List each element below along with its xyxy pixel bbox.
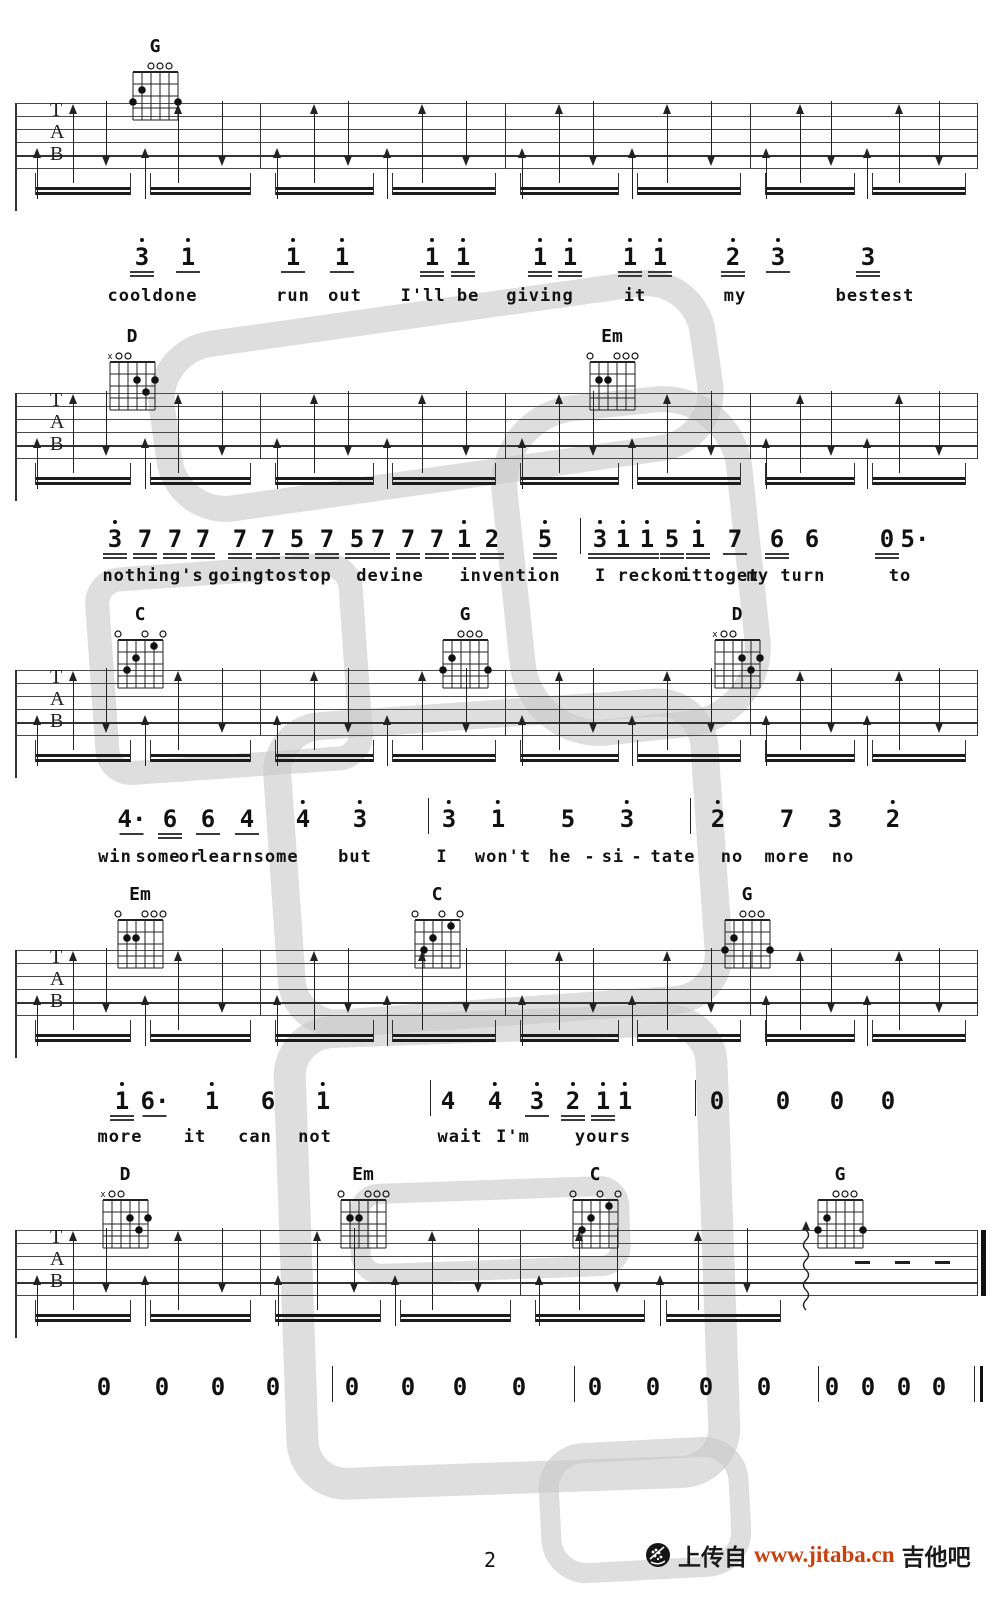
melody-number: 4· [118,800,147,835]
staff-line [15,709,977,710]
lyric-word: - [631,847,642,867]
strum-up-arrow [314,680,315,750]
duration-underline [648,275,672,277]
duration-underline [133,553,157,555]
melody-number: 7 [396,520,420,559]
clef-letter-t: T [50,100,62,120]
duration-underline [525,1115,549,1117]
strum-up-arrow [667,960,668,1030]
number-text: 1 [558,245,582,269]
lyric-word: my turn [747,566,826,586]
beam-stem [495,1020,496,1042]
strum-up-arrow [899,960,900,1030]
site-url: www.jitaba.cn [754,1542,895,1568]
beam-line [872,759,966,762]
number-text: 4 [296,807,310,831]
number-text: 2 [721,245,745,269]
chord-diagram: C [408,886,466,969]
octave-dot [625,800,629,804]
duration-underline [163,553,187,555]
beam-stem [618,1020,619,1042]
octave-dot [321,1082,325,1086]
number-text: 3 [828,807,842,831]
beam-stem [275,740,276,762]
strum-up-arrow [178,680,179,750]
melody-number: 7 [133,520,157,559]
clef-letter-a: A [50,122,64,142]
lyric-word: yours [575,1127,631,1147]
strum-down-arrow [747,1228,748,1284]
beam-stem [872,173,873,195]
final-measure-separator [974,1366,983,1402]
staff-line [15,458,977,459]
beam-stem [250,463,251,485]
octave-dot [571,1082,575,1086]
beam-line [637,187,740,190]
strum-up-arrow [145,157,146,199]
lyric-word: done [153,286,198,306]
beam-line [637,754,740,757]
number-text: 3 [766,245,790,269]
melody-number: 1 [110,1082,134,1121]
strum-up-arrow [395,1284,396,1326]
strum-down-arrow [831,391,832,447]
strum-up-arrow [145,724,146,766]
beam-line [872,477,966,480]
duration-underline [618,271,642,273]
beam-stem [275,1020,276,1042]
chord-diagram: G [811,1166,869,1249]
melody-number: 0 [512,1368,526,1399]
staff-line [15,1282,977,1284]
beam-line [275,1034,373,1037]
octave-dot [462,520,466,524]
number-text: 1 [648,245,672,269]
strum-down-arrow [222,101,223,157]
melody-number: 7 [228,520,252,559]
melody-number: 5· [901,520,930,551]
lyric-word: won't [475,847,531,867]
octave-dot [598,520,602,524]
number-text: 7 [133,527,157,551]
chord-name: G [811,1166,869,1184]
octave-dot [358,800,362,804]
melody-number: 4 [235,800,259,835]
strum-up-arrow [422,680,423,750]
site-name: 吉他吧 [902,1538,971,1572]
melody-number: 3 [856,238,880,277]
chord-name: Em [334,1166,392,1184]
number-text: 6 [158,807,182,831]
lyric-word: my [724,286,746,306]
chord-name: C [111,606,169,624]
lyric-word: no [721,847,743,867]
beam-line [150,192,250,195]
melody-number: 3 [766,238,790,273]
duration-underline [635,557,659,559]
staff-line [15,1015,977,1016]
lyric-word: run [276,286,310,306]
number-text: 1 [110,1089,134,1113]
tab-sheet-page: GTABDxEmTABCGDxTABEmCGTABDxEmCGTAB311111… [0,0,1000,1600]
duration-underline [588,553,612,555]
melody-number: 3 [588,520,612,559]
chord-diagram: G [436,606,494,689]
beam-line [150,1039,250,1042]
beam-stem [400,1300,401,1322]
duration-underline [420,271,444,273]
staff-line [15,1269,977,1270]
beam-stem [35,1020,36,1042]
clef-letter-b: B [50,1271,63,1291]
beam-stem [740,740,741,762]
strum-up-arrow [73,403,74,473]
beam-stem [965,740,966,762]
strum-up-arrow [314,960,315,1030]
beam-line [535,1319,644,1322]
chord-name: D [103,328,161,346]
duration-underline [420,275,444,277]
number-text: 1 [176,245,200,269]
number-text: 1 [591,1089,615,1113]
beam-line [666,1319,780,1322]
melody-number: 0 [453,1368,467,1399]
melody-number: 7 [780,800,794,831]
beam-line [150,1319,250,1322]
number-text: 0 [453,1375,467,1399]
number-text: 0 [932,1375,946,1399]
melody-number: 2 [480,520,504,559]
duration-underline [721,275,745,277]
octave-dot [601,1082,605,1086]
beam-line [520,192,618,195]
beam-stem [965,1020,966,1042]
octave-dot [696,520,700,524]
lyric-word: learnsome [197,847,298,867]
beam-line [520,1039,618,1042]
beam-stem [373,740,374,762]
barline [520,1230,521,1296]
duration-underline [163,557,187,559]
beam-line [872,1034,966,1037]
strum-down-arrow [106,948,107,1004]
notation-layer: GTABDxEmTABCGDxTABEmCGTABDxEmCGTAB311111… [0,0,1000,1600]
lyric-word: it [184,1127,206,1147]
staff-line [15,735,977,736]
duration-underline [766,271,790,273]
melody-number: 1 [316,1082,330,1113]
number-text: 3 [588,527,612,551]
strum-up-arrow [73,113,74,183]
site-logo-icon [645,1542,671,1568]
lyric-word: more [98,1127,143,1147]
number-text: 1 [528,245,552,269]
strum-up-arrow [314,113,315,183]
measure-separator [332,1366,333,1402]
beam-line [392,1034,495,1037]
beam-line [35,1039,130,1042]
duration-underline [533,557,557,559]
staff-left-edge [15,670,17,778]
beam-stem [250,173,251,195]
number-text: 2 [886,807,900,831]
strum-up-arrow [899,403,900,473]
duration-underline [451,275,475,277]
strum-up-arrow [559,403,560,473]
melody-number: 4 [296,800,310,831]
duration-underline [452,553,476,555]
beam-line [35,1034,130,1037]
melody-number: 5 [660,520,684,559]
number-text: 1 [635,527,659,551]
beam-stem [35,173,36,195]
beam-stem [35,463,36,485]
barline [505,393,506,459]
lyric-word: more [765,847,810,867]
octave-dot [543,520,547,524]
strum-up-arrow [632,1004,633,1046]
beam-stem [275,173,276,195]
octave-dot [447,800,451,804]
melody-number: 7 [425,520,449,559]
duration-underline [561,1119,585,1121]
strum-up-arrow [145,447,146,489]
chord-diagram: Dx [96,1166,154,1249]
beam-line [275,1314,380,1317]
number-text: 3 [856,245,880,269]
octave-dot [496,800,500,804]
barline [260,393,261,459]
melody-number: 1 [451,238,475,277]
number-text: 3 [353,807,367,831]
number-text: 0 [710,1089,724,1113]
melody-number: 0 [710,1082,724,1113]
number-text: 6 [196,807,220,831]
beam-line [35,759,130,762]
final-barline-thick [981,1230,986,1296]
beam-line [400,1314,510,1317]
number-text: 0 [588,1375,602,1399]
duration-underline [611,553,635,555]
barline [505,103,506,169]
number-text: 2 [561,1089,585,1113]
octave-dot [493,1082,497,1086]
strum-down-arrow [222,1228,223,1284]
duration-underline [133,557,157,559]
beam-line [35,754,130,757]
clef-letter-a: A [50,412,64,432]
number-text: 0 [897,1375,911,1399]
number-text: 3 [442,807,456,831]
beam-line [275,1319,380,1322]
beam-line [520,759,618,762]
melody-number: 0 [897,1368,911,1399]
strum-down-arrow [106,101,107,157]
melody-number: 0 [345,1368,359,1399]
duration-underline [315,553,339,555]
staff-left-edge [15,1230,17,1338]
strum-up-arrow [178,1240,179,1310]
duration-underline [558,271,582,273]
beam-line [765,1039,854,1042]
number-text: 3 [103,527,127,551]
strum-up-arrow [800,113,801,183]
number-text: 0 [875,527,899,551]
melody-number: 1 [205,1082,219,1113]
octave-dot [621,520,625,524]
beam-line [275,192,373,195]
beam-line [400,1319,510,1322]
lyric-word: I reckon [595,566,685,586]
beam-stem [765,740,766,762]
strum-up-arrow [667,680,668,750]
duration-underline [130,275,154,277]
melody-number: 0 [401,1368,415,1399]
staff-left-edge [15,950,17,1058]
strum-up-arrow [867,1004,868,1046]
chord-name: D [96,1166,154,1184]
melody-number: 0 [776,1082,790,1113]
strum-up-arrow [422,403,423,473]
duration-underline [256,557,280,559]
upload-text: 上传自 [678,1538,747,1572]
beam-stem [765,173,766,195]
strum-down-arrow [711,391,712,447]
duration-underline [425,553,449,555]
duration-underline [660,557,684,559]
beam-stem [644,1300,645,1322]
melody-number: 6 [158,800,182,839]
duration-underline [856,275,880,277]
number-text: 0 [881,1089,895,1113]
beam-stem [495,173,496,195]
staff-line [15,696,977,697]
strum-up-arrow [632,724,633,766]
duration-underline [686,553,710,555]
octave-dot [140,238,144,242]
number-text: 1 [420,245,444,269]
duration-underline [480,553,504,555]
melody-number: 5 [561,800,575,831]
strum-up-arrow [800,403,801,473]
staff-line [15,142,977,143]
beam-stem [637,463,638,485]
octave-dot [731,238,735,242]
duration-underline [396,553,420,555]
strum-up-arrow [667,403,668,473]
strum-up-arrow [899,113,900,183]
beam-line [637,192,740,195]
beam-line [637,477,740,480]
melody-number: 1 [281,238,305,273]
melody-number: 3 [620,800,634,831]
strum-up-arrow [178,403,179,473]
clef-letter-b: B [50,144,63,164]
melody-number: 2 [886,800,900,831]
strum-up-arrow [432,1240,433,1310]
melody-number: 5 [285,520,309,559]
octave-dot [430,238,434,242]
number-text: 5· [901,527,930,551]
beam-line [765,482,854,485]
beam-stem [520,1020,521,1042]
melody-number: 3 [828,800,842,831]
beam-stem [392,740,393,762]
lyric-word: I'm [496,1127,530,1147]
clef-letter-a: A [50,689,64,709]
beam-stem [872,463,873,485]
rest-dash [895,1261,910,1264]
chord-name: D [708,606,766,624]
duration-underline [228,557,252,559]
duration-underline [158,837,182,839]
octave-dot [340,238,344,242]
number-text: 1 [618,245,642,269]
beam-line [275,754,373,757]
beam-stem [740,173,741,195]
beam-line [275,1039,373,1042]
melody-number: 0 [588,1368,602,1399]
number-text: 7 [256,527,280,551]
staff-line [15,168,977,169]
staff-line [15,1295,977,1296]
beam-stem [130,463,131,485]
beam-line [275,477,373,480]
barline [505,670,506,736]
strum-up-arrow [632,447,633,489]
lyric-word: goingtostop [208,566,332,586]
number-text: 4 [441,1089,455,1113]
beam-line [392,754,495,757]
beam-stem [520,740,521,762]
beam-line [35,1314,130,1317]
beam-line [150,1034,250,1037]
beam-stem [666,1300,667,1322]
melody-number: 1 [591,1082,615,1121]
lyric-word: to [889,566,911,586]
strum-up-arrow [800,680,801,750]
number-text: 0 [97,1375,111,1399]
strum-down-arrow [106,668,107,724]
number-text: 2 [480,527,504,551]
beam-stem [150,1300,151,1322]
beam-line [637,1039,740,1042]
octave-dot [776,238,780,242]
number-text: 6· [141,1089,170,1113]
melody-number: 7 [163,520,187,559]
melody-number: 2 [721,238,745,277]
melody-number: 0 [699,1368,713,1399]
strum-down-arrow [939,101,940,157]
beam-line [35,477,130,480]
strum-up-arrow [867,724,868,766]
strum-down-arrow [593,668,594,724]
number-text: 7 [228,527,252,551]
lyric-word: no [832,847,854,867]
beam-stem [637,1020,638,1042]
chord-name: C [408,886,466,904]
number-text: 1 [452,527,476,551]
lyric-word: bestest [836,286,915,306]
number-text: 1 [316,1089,330,1113]
duration-underline [315,557,339,559]
beam-stem [150,463,151,485]
strum-down-arrow [831,101,832,157]
melody-number: 0 [825,1368,839,1399]
final-barline-thin [977,1230,978,1296]
number-text: 6 [765,527,789,551]
duration-underline [856,271,880,273]
